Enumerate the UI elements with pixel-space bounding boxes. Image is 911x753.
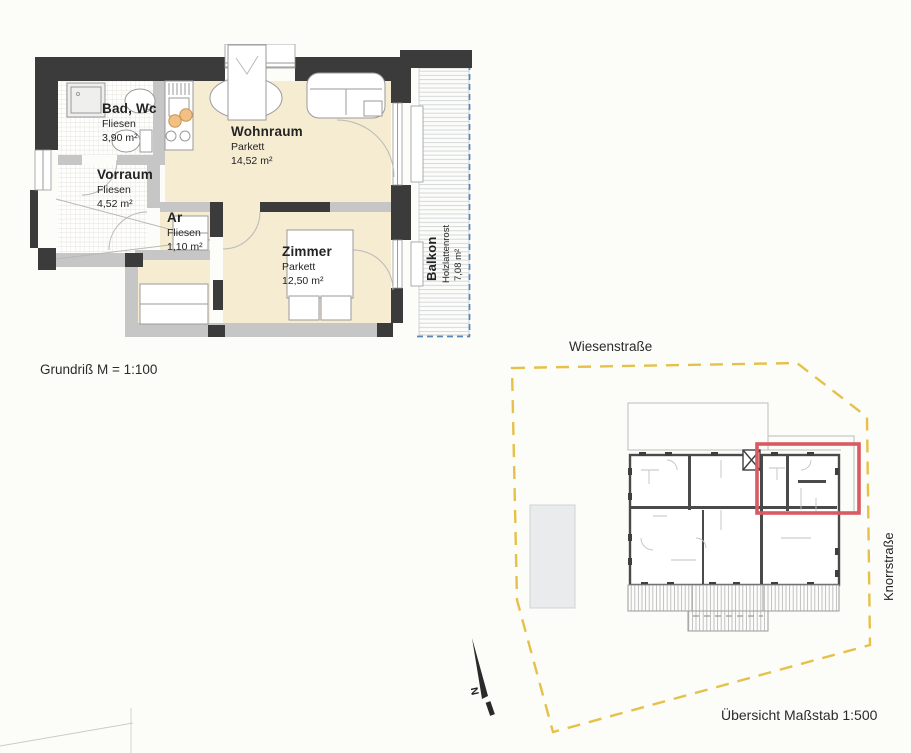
- site-plan: N Wiesenstraße Knorrstraße Übersicht Maß…: [471, 338, 911, 753]
- room-floor: Parkett: [282, 262, 332, 273]
- overview-scale-caption: Übersicht Maßstab 1:500: [721, 707, 877, 723]
- main-building: [628, 450, 839, 586]
- room-label-wohnraum: Wohnraum Parkett 14,52 m²: [231, 125, 303, 167]
- room-label-balkon: Balkon: [424, 236, 439, 281]
- room-floor: Fliesen: [97, 185, 153, 196]
- site-plan-drawing: N: [471, 338, 911, 753]
- room-floor: Fliesen: [167, 228, 203, 239]
- north-arrow-icon: N: [471, 638, 493, 715]
- room-floor: Fliesen: [102, 119, 157, 130]
- room-name: Wohnraum: [231, 125, 303, 139]
- outbuilding: [530, 505, 575, 608]
- room-area: 4,52 m²: [97, 199, 153, 210]
- room-floor-balkon: Holzlattenrost: [441, 225, 452, 283]
- scanned-plan-page: Bad, Wc Fliesen 3,90 m² Vorraum Fliesen …: [0, 0, 911, 753]
- scan-artifact-lines: [0, 700, 140, 753]
- building-balconies: [628, 585, 839, 631]
- room-area: 14,52 m²: [231, 156, 303, 167]
- room-name: Vorraum: [97, 168, 153, 182]
- north-label: N: [471, 686, 482, 696]
- floor-plan-drawing: [20, 44, 479, 346]
- room-name: Bad, Wc: [102, 102, 157, 116]
- plan-scale-caption: Grundriß M = 1:100: [40, 362, 157, 377]
- street-label-right: Knorrstraße: [881, 532, 896, 601]
- room-label-ar: Ar Fliesen 1,10 m²: [167, 211, 203, 253]
- room-label-zimmer: Zimmer Parkett 12,50 m²: [282, 245, 332, 287]
- room-label-bad-wc: Bad, Wc Fliesen 3,90 m²: [102, 102, 157, 144]
- room-name: Ar: [167, 211, 203, 225]
- room-area: 1,10 m²: [167, 242, 203, 253]
- room-name: Zimmer: [282, 245, 332, 259]
- room-area: 3,90 m²: [102, 133, 157, 144]
- floor-plan: Bad, Wc Fliesen 3,90 m² Vorraum Fliesen …: [20, 44, 479, 346]
- room-floor: Parkett: [231, 142, 303, 153]
- street-label-top: Wiesenstraße: [569, 339, 652, 354]
- room-area-balkon: 7,08 m²: [453, 249, 464, 281]
- room-label-vorraum: Vorraum Fliesen 4,52 m²: [97, 168, 153, 210]
- room-area: 12,50 m²: [282, 276, 332, 287]
